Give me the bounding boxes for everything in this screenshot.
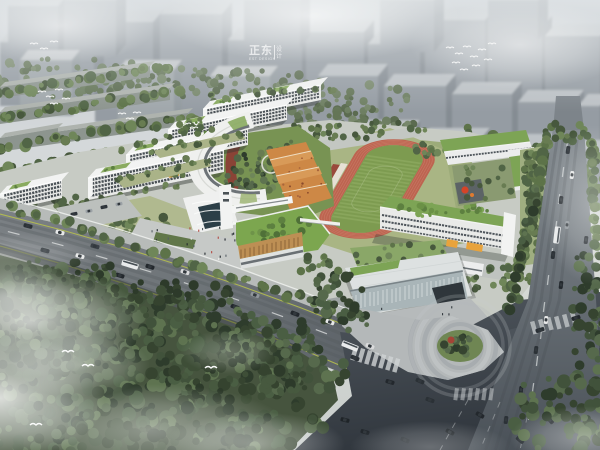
svg-text:计: 计 [276,52,282,60]
svg-text:正东: 正东 [249,43,273,57]
svg-text:EST DESIGN: EST DESIGN [249,57,276,61]
svg-text:设: 设 [276,45,282,53]
